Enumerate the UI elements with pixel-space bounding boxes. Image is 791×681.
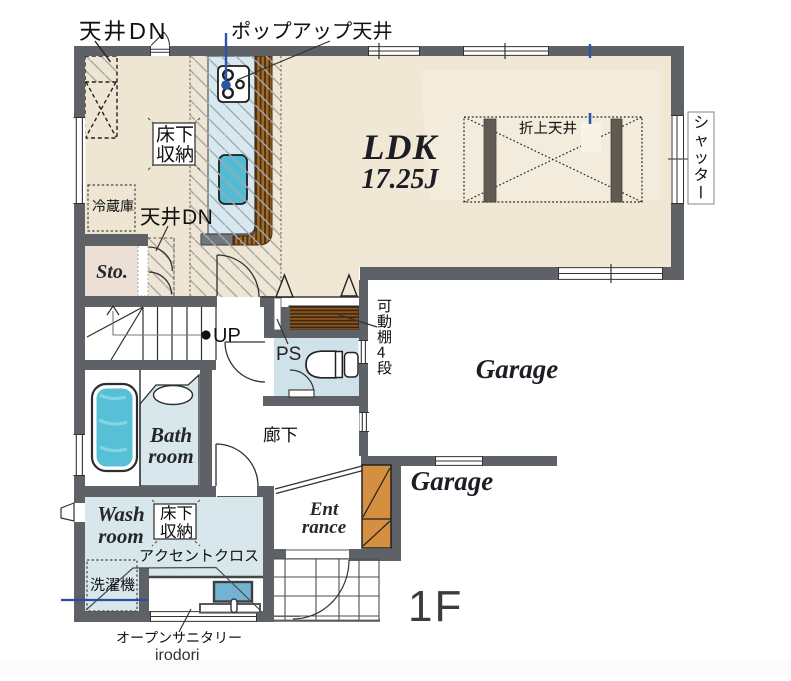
svg-text:1F: 1F	[408, 582, 463, 631]
svg-text:Garage: Garage	[476, 354, 559, 384]
svg-text:rance: rance	[302, 517, 347, 538]
svg-text:Sto.: Sto.	[96, 261, 128, 283]
svg-text:17.25J: 17.25J	[362, 164, 440, 195]
svg-text:room: room	[148, 444, 194, 468]
svg-text:DN: DN	[182, 206, 213, 229]
svg-text:irodori: irodori	[155, 647, 199, 664]
svg-text:UP: UP	[213, 325, 241, 347]
svg-text:LDK: LDK	[362, 127, 440, 167]
svg-text:DN: DN	[129, 18, 168, 44]
svg-text:Garage: Garage	[411, 466, 494, 496]
svg-text:Wash: Wash	[97, 502, 144, 526]
svg-text:PS: PS	[276, 344, 301, 365]
svg-text:room: room	[98, 524, 144, 548]
